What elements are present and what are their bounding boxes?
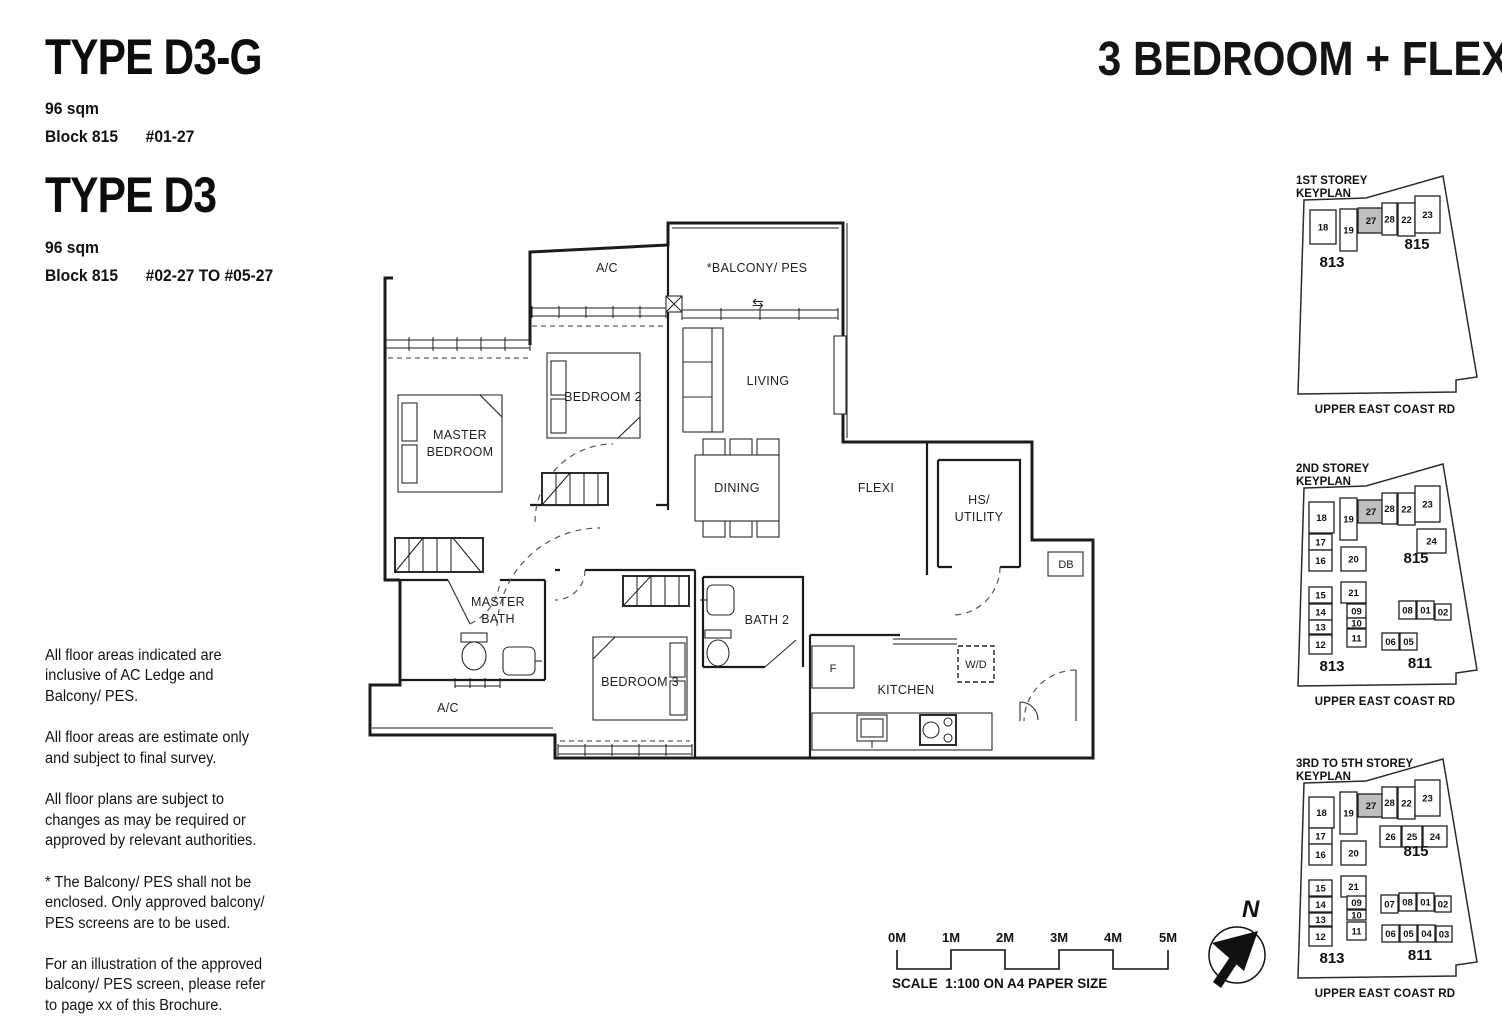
scale-bar-line (897, 950, 1168, 969)
unit-type-2-title: TYPE D3 (45, 170, 256, 220)
room-label-bedroom2: BEDROOM 2 (564, 390, 642, 404)
keyplan-unit-number: 08 (1402, 898, 1413, 909)
keyplan-block-label: 813 (1319, 658, 1344, 675)
keyplan-unit-number: 14 (1315, 608, 1326, 619)
stove (920, 715, 956, 745)
keyplan-unit-number: 01 (1420, 898, 1431, 909)
keyplan-unit-number: 09 (1351, 607, 1362, 618)
unit-type-2-block: Block 815 (45, 266, 118, 285)
keyplan-unit-number: 18 (1316, 808, 1327, 819)
sink (503, 647, 542, 675)
keyplan-unit-number: 17 (1315, 832, 1326, 843)
wardrobe (395, 538, 483, 572)
note-paragraph: For an illustration of the approved balc… (45, 955, 267, 1016)
keyplan-road-label: UPPER EAST COAST RD (1315, 696, 1456, 708)
note-paragraph: * The Balcony/ PES shall not be enclosed… (45, 873, 267, 934)
keyplan-unit-number: 20 (1348, 555, 1359, 566)
room-label-ac-top: A/C (596, 261, 618, 275)
keyplan-unit-number: 06 (1385, 637, 1396, 648)
scale-tick-1m: 1M (942, 930, 960, 945)
keyplan-unit-number: 27 (1366, 216, 1377, 227)
keyplan-unit-number: 18 (1318, 223, 1329, 234)
wardrobe (623, 576, 689, 606)
sofa (683, 328, 723, 432)
keyplan-unit-number: 08 (1402, 606, 1413, 617)
floor-plan: A/C *BALCONY/ PES ⇆ BEDROOM 2 LIVING MAS… (360, 190, 1120, 770)
keyplan-title-line1: 3RD TO 5TH STOREY (1296, 758, 1413, 770)
note-paragraph: All floor plans are subject to changes a… (45, 790, 267, 851)
keyplan-unit-number: 23 (1422, 794, 1433, 805)
floor-plan-furniture (395, 328, 1083, 750)
keyplan-unit-number: 12 (1315, 932, 1326, 943)
keyplan-unit-number: 05 (1403, 637, 1414, 648)
category-header: 3 BEDROOM + FLEXI (1040, 36, 1470, 84)
keyplan-unit-number: 02 (1438, 608, 1449, 619)
keyplan-unit-number: 03 (1439, 930, 1450, 941)
keyplan-block-label: 815 (1403, 550, 1428, 567)
keyplan-unit-number: 28 (1384, 504, 1395, 515)
room-label-master-bath-2: BATH (481, 612, 515, 626)
keyplan-unit-number: 07 (1384, 900, 1395, 911)
scale-tick-4m: 4M (1104, 930, 1122, 945)
scale-tick-5m: 5M (1159, 930, 1177, 945)
keyplan-unit-number: 17 (1315, 538, 1326, 549)
category-title: 3 BEDROOM + FLEXI (1098, 36, 1502, 84)
keyplan-block-label: 813 (1319, 950, 1344, 967)
keyplan-unit-number: 15 (1315, 591, 1326, 602)
keyplan-unit-number: 24 (1426, 537, 1437, 548)
keyplan-unit-number: 09 (1351, 898, 1362, 909)
keyplan-title-line2: KEYPLAN (1296, 476, 1351, 488)
keyplan-road-label: UPPER EAST COAST RD (1315, 988, 1456, 1000)
room-label-bath2: BATH 2 (745, 613, 790, 627)
keyplan-block-label: 811 (1408, 655, 1432, 672)
keyplan-unit-number: 15 (1315, 884, 1326, 895)
sink (700, 585, 734, 615)
room-label-hs-1: HS/ (968, 493, 990, 507)
room-label-db: DB (1058, 559, 1073, 571)
scale-tick-3m: 3M (1050, 930, 1068, 945)
north-compass-icon: N (1200, 885, 1286, 1000)
keyplan-title-line1: 2ND STOREY (1296, 463, 1370, 475)
room-label-kitchen: KITCHEN (878, 683, 935, 697)
disclaimer-notes: All floor areas indicated are inclusive … (45, 646, 267, 1028)
room-label-hs-2: UTILITY (955, 510, 1004, 524)
keyplan-block-label: 815 (1404, 236, 1429, 253)
kitchen-sink (857, 715, 887, 748)
room-label-master-bedroom-2: BEDROOM (427, 445, 494, 459)
wardrobe (542, 473, 608, 505)
keyplan-unit-number: 14 (1315, 900, 1326, 911)
keyplan-title-line1: 1ST STOREY (1296, 175, 1368, 187)
keyplan-3rd-to-5th-storey: 1819272822231726252416201521140907080102… (1288, 755, 1502, 1013)
toilet (705, 630, 731, 666)
keyplan-unit-number: 24 (1430, 832, 1441, 843)
room-label-master-bath-1: MASTER (471, 595, 525, 609)
keyplan-unit-number: 26 (1385, 832, 1396, 843)
keyplan-unit-number: 25 (1407, 832, 1418, 843)
unit-type-1-stack: #01-27 (146, 127, 195, 146)
unit-type-1-block: Block 815 (45, 127, 118, 146)
room-label-fridge: F (830, 663, 837, 675)
keyplan-unit-number: 19 (1343, 809, 1354, 820)
scale-tick-2m: 2M (996, 930, 1014, 945)
tv-console (834, 336, 846, 414)
keyplan-unit-number: 19 (1343, 226, 1354, 237)
keyplan-unit-number: 04 (1421, 929, 1432, 940)
keyplan-unit-number: 12 (1315, 640, 1326, 651)
room-label-balcony: *BALCONY/ PES (707, 261, 807, 275)
room-label-dining: DINING (714, 481, 760, 495)
keyplan-unit-number: 23 (1422, 210, 1433, 221)
keyplan-block-label: 815 (1403, 843, 1428, 860)
keyplan-unit-number: 11 (1351, 634, 1362, 645)
keyplan-unit-number: 22 (1401, 215, 1412, 226)
keyplan-unit-number: 21 (1348, 588, 1359, 599)
keyplan-unit-number: 27 (1366, 801, 1377, 812)
keyplan-unit-number: 05 (1403, 929, 1414, 940)
keyplan-title-line2: KEYPLAN (1296, 188, 1351, 200)
room-label-ac-bottom: A/C (437, 701, 459, 715)
keyplan-unit-number: 10 (1351, 911, 1362, 922)
keyplan-unit-number: 27 (1366, 507, 1377, 518)
scale-bar: 0M 1M 2M 3M 4M 5M SCALE 1:100 ON A4 PAPE… (882, 922, 1202, 994)
note-paragraph: All floor areas are estimate only and su… (45, 728, 267, 769)
keyplan-block-label: 811 (1408, 947, 1432, 964)
keyplan-unit-number: 11 (1351, 927, 1362, 938)
unit-type-1-block-line: Block 815#01-27 (45, 127, 280, 147)
keyplan-unit-number: 21 (1348, 882, 1359, 893)
keyplan-title-line2: KEYPLAN (1296, 771, 1351, 783)
keyplan-unit-number: 10 (1351, 619, 1362, 630)
keyplan-unit-number: 01 (1420, 606, 1431, 617)
keyplan-unit-number: 20 (1348, 849, 1359, 860)
unit-type-2: TYPE D3 96 sqm Block 815#02-27 TO #05-27 (45, 170, 293, 286)
room-label-living: LIVING (747, 374, 790, 388)
unit-type-2-area: 96 sqm (45, 238, 273, 258)
room-label-bedroom3: BEDROOM 3 (601, 675, 679, 689)
unit-type-1-area: 96 sqm (45, 99, 280, 119)
keyplan-unit-number: 28 (1384, 798, 1395, 809)
toilet (461, 633, 487, 670)
unit-type-1-title: TYPE D3-G (45, 32, 262, 82)
column-box (666, 296, 682, 312)
keyplan-unit-number: 23 (1422, 500, 1433, 511)
keyplan-unit-number: 16 (1315, 850, 1326, 861)
keyplan-2nd-storey: 1819272822231724162015211409101312110801… (1288, 460, 1502, 718)
scale-caption: SCALE 1:100 ON A4 PAPER SIZE (892, 976, 1107, 991)
keyplan-unit-number: 16 (1315, 556, 1326, 567)
keyplan-1st-storey: 181927282223815813 1ST STOREY KEYPLAN UP… (1288, 172, 1502, 430)
keyplan-unit-number: 13 (1315, 915, 1326, 926)
keyplan-road-label: UPPER EAST COAST RD (1315, 404, 1456, 416)
room-label-flexi: FLEXI (858, 481, 894, 495)
unit-type-1: TYPE D3-G 96 sqm Block 815#01-27 (45, 32, 300, 147)
unit-type-2-block-line: Block 815#02-27 TO #05-27 (45, 266, 273, 286)
balcony-arrow-icon: ⇆ (752, 295, 764, 311)
brochure-page: TYPE D3-G 96 sqm Block 815#01-27 TYPE D3… (0, 0, 1502, 1028)
room-label-wd: W/D (965, 659, 986, 671)
keyplan-block-label: 813 (1319, 254, 1344, 271)
keyplan-unit-number: 02 (1438, 900, 1449, 911)
keyplan-unit-number: 18 (1316, 513, 1327, 524)
north-label: N (1242, 896, 1260, 923)
scale-tick-0m: 0M (888, 930, 906, 945)
keyplan-unit-number: 19 (1343, 515, 1354, 526)
unit-type-2-stack: #02-27 TO #05-27 (146, 266, 274, 285)
keyplan-unit-number: 06 (1385, 929, 1396, 940)
keyplan-unit-number: 22 (1401, 799, 1412, 810)
keyplan-unit-number: 28 (1384, 215, 1395, 226)
room-label-master-bedroom-1: MASTER (433, 428, 487, 442)
note-paragraph: All floor areas indicated are inclusive … (45, 646, 267, 707)
keyplan-unit-number: 22 (1401, 505, 1412, 516)
keyplan-unit-number: 13 (1315, 623, 1326, 634)
